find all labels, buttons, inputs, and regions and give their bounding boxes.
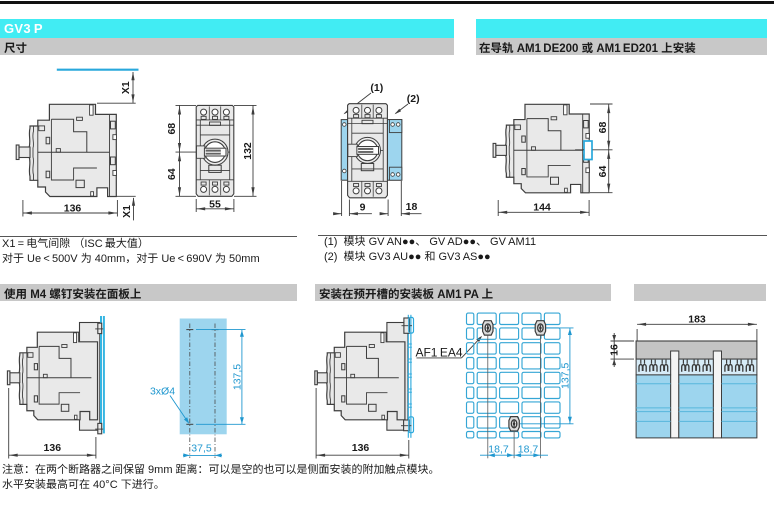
svg-text:AF1 EA4: AF1 EA4	[415, 345, 462, 359]
svg-text:(1): (1)	[370, 82, 383, 94]
svg-text:68: 68	[597, 122, 609, 134]
svg-text:136: 136	[64, 203, 82, 215]
svg-text:136: 136	[352, 442, 370, 454]
svg-text:144: 144	[533, 202, 551, 214]
svg-text:68: 68	[166, 123, 178, 135]
svg-text:18: 18	[406, 201, 418, 213]
svg-text:137,5: 137,5	[560, 363, 572, 389]
svg-text:132: 132	[242, 142, 254, 160]
svg-text:3xØ4: 3xØ4	[150, 385, 175, 397]
svg-text:183: 183	[688, 313, 706, 325]
svg-text:18,7: 18,7	[488, 443, 509, 455]
svg-text:55: 55	[209, 198, 221, 210]
svg-text:64: 64	[597, 166, 609, 178]
svg-text:137,5: 137,5	[232, 364, 244, 390]
svg-text:X1: X1	[121, 205, 133, 218]
svg-text:9: 9	[360, 201, 366, 213]
svg-text:136: 136	[44, 442, 62, 454]
svg-text:16: 16	[609, 344, 621, 356]
svg-text:X1: X1	[120, 81, 132, 94]
svg-text:18,7: 18,7	[518, 443, 539, 455]
svg-text:(2): (2)	[407, 93, 420, 105]
svg-text:37,5: 37,5	[191, 442, 212, 454]
svg-text:64: 64	[166, 168, 178, 180]
